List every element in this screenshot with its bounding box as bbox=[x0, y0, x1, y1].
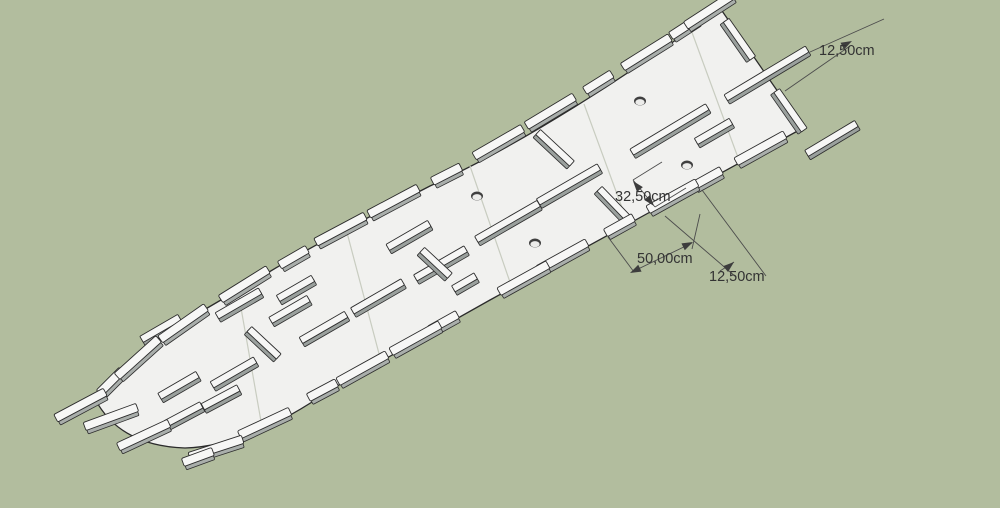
screw-hole bbox=[681, 161, 693, 170]
dimension-label-tab-spacing: 50,00cm bbox=[637, 251, 693, 267]
model-canvas[interactable]: 12,50cm 32,50cm 50,00cm 12,50cm bbox=[0, 0, 1000, 508]
sketchup-viewport[interactable]: 12,50cm 32,50cm 50,00cm 12,50cm bbox=[0, 0, 1000, 508]
dimension-label-edge-tab: 12,50cm bbox=[709, 269, 765, 285]
dimension-label-end-tab: 12,50cm bbox=[819, 43, 875, 59]
screw-hole bbox=[634, 97, 646, 106]
screw-hole bbox=[471, 192, 483, 201]
dimension-label-slot-offset: 32,50cm bbox=[615, 189, 671, 205]
screw-hole bbox=[529, 239, 541, 248]
